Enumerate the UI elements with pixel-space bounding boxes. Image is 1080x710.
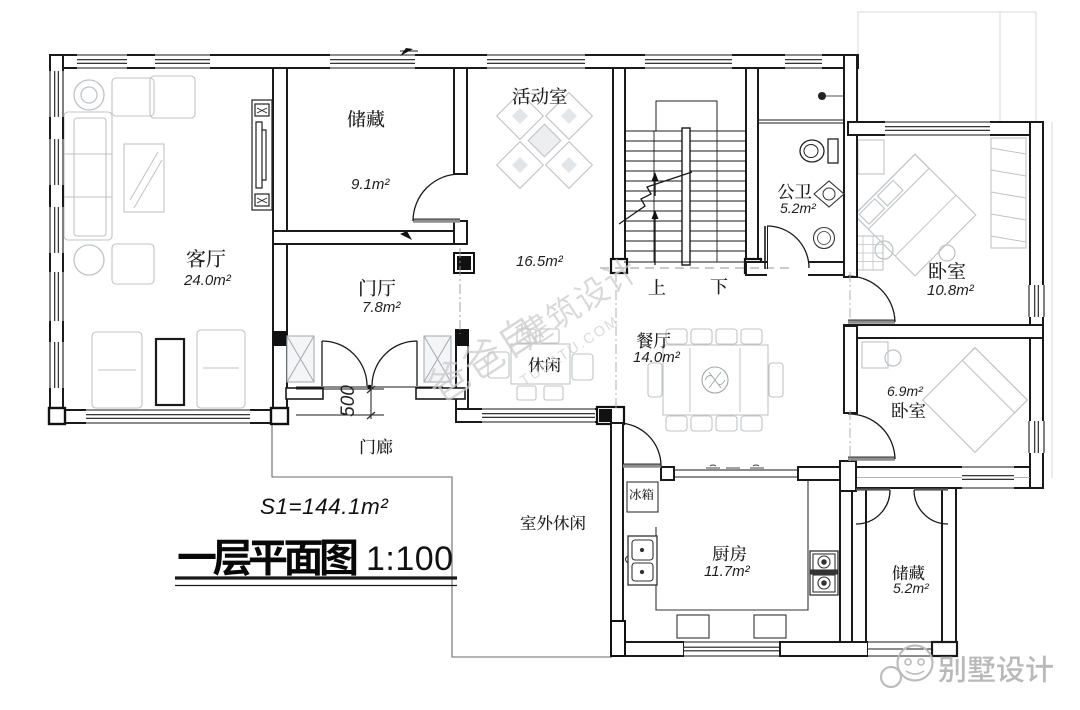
svg-text:9.1m²: 9.1m² xyxy=(351,176,390,193)
svg-text:5.2m²: 5.2m² xyxy=(893,580,930,596)
svg-text:10.8m²: 10.8m² xyxy=(927,282,975,299)
svg-text:S1=144.1m²: S1=144.1m² xyxy=(260,494,389,519)
svg-text:1:100: 1:100 xyxy=(366,540,454,578)
svg-text:24.0m²: 24.0m² xyxy=(183,272,232,289)
svg-text:5.2m²: 5.2m² xyxy=(780,200,817,216)
svg-text:500: 500 xyxy=(338,385,359,417)
svg-text:7.8m²: 7.8m² xyxy=(362,299,401,316)
svg-text:11.7m²: 11.7m² xyxy=(704,563,751,580)
svg-text:6.9m²: 6.9m² xyxy=(887,383,924,399)
svg-text:16.5m²: 16.5m² xyxy=(516,253,564,270)
svg-text:14.0m²: 14.0m² xyxy=(633,349,681,366)
